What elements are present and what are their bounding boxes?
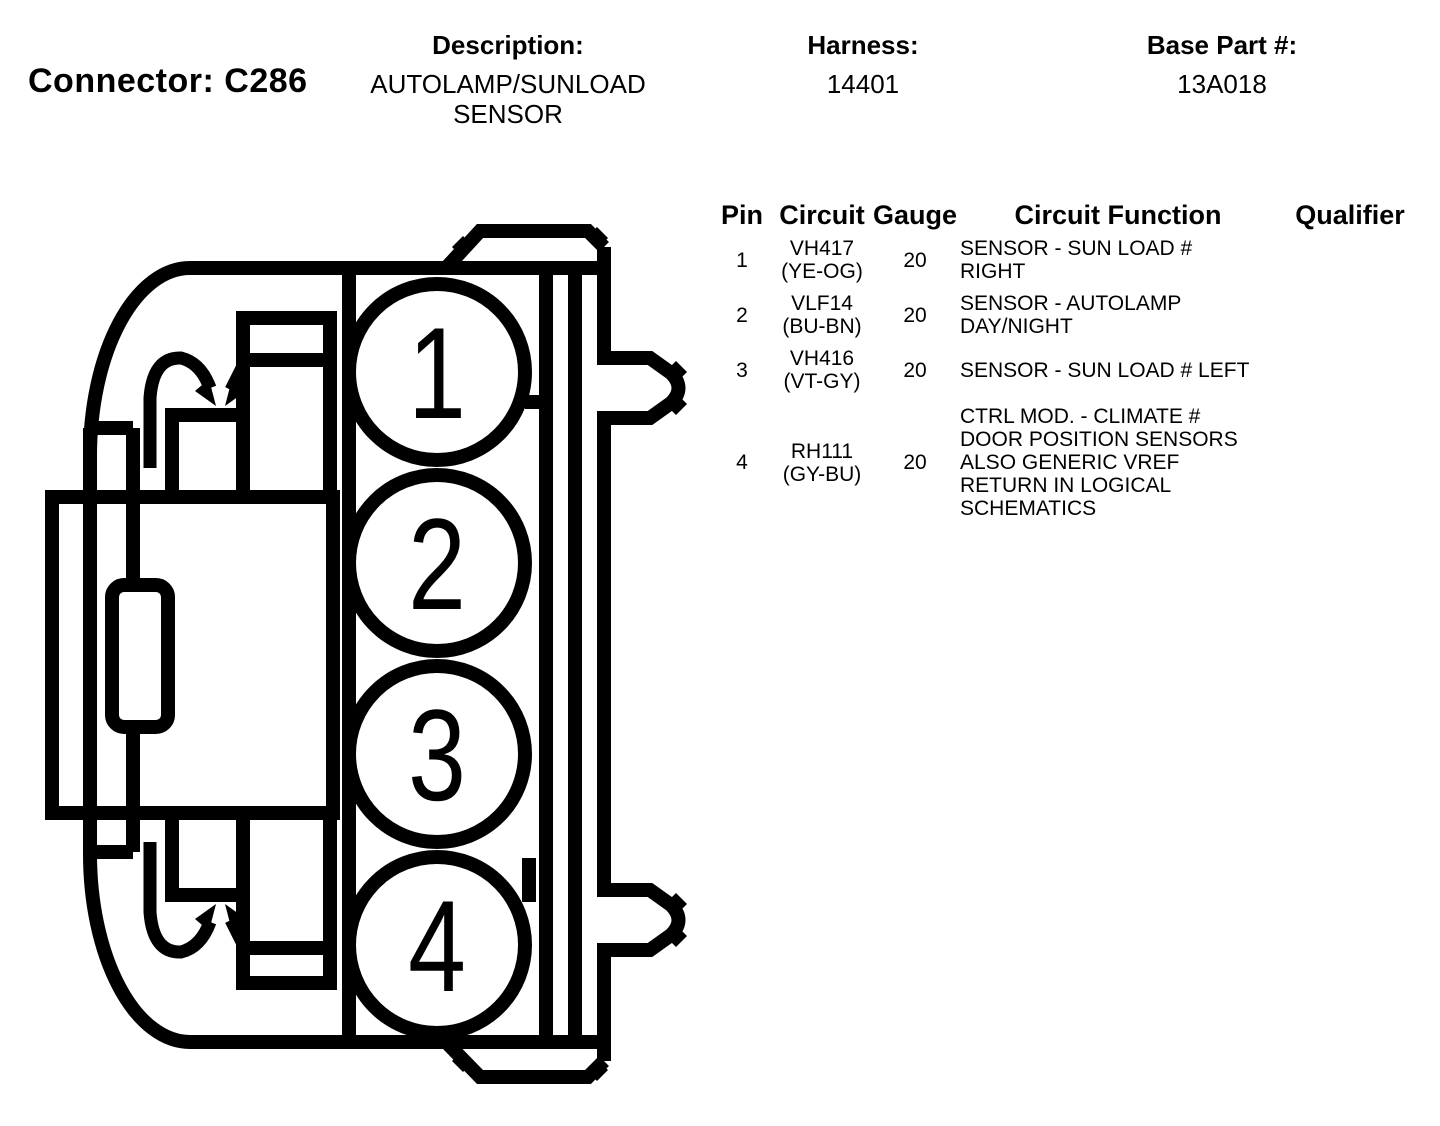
col-header-circuit-function: Circuit Function: [958, 199, 1278, 231]
pin-3-label: 3: [408, 682, 466, 828]
circuit-function-cell: SENSOR - SUN LOAD # LEFT: [958, 359, 1278, 382]
description-value-line2: SENSOR: [358, 99, 658, 129]
circuit-function-cell: SENSOR - AUTOLAMP DAY/NIGHT: [958, 292, 1278, 338]
circuit-function-cell: CTRL MOD. - CLIMATE # DOOR POSITION SENS…: [958, 405, 1278, 520]
circuit-cell: VH416 (VT-GY): [772, 347, 872, 393]
circuit-cell: VLF14 (BU-BN): [772, 292, 872, 338]
gauge-value: 20: [872, 451, 958, 474]
circuit-function-cell: SENSOR - SUN LOAD # RIGHT: [958, 237, 1278, 283]
base-part-label: Base Part #:: [1122, 30, 1322, 60]
harness-field: Harness: 14401: [763, 30, 963, 99]
pin-number: 1: [712, 249, 772, 272]
col-header-gauge: Gauge: [872, 199, 958, 231]
pin-2-label: 2: [408, 491, 466, 637]
table-row: 3 VH416 (VT-GY) 20 SENSOR - SUN LOAD # L…: [712, 347, 1422, 393]
table-row: 2 VLF14 (BU-BN) 20 SENSOR - AUTOLAMP DAY…: [712, 292, 1422, 338]
gauge-value: 20: [872, 249, 958, 272]
function-line: SENSOR - AUTOLAMP: [960, 292, 1278, 315]
pin-number: 3: [712, 359, 772, 382]
circuit-color: (GY-BU): [772, 463, 872, 486]
circuit-id: VH417: [772, 237, 872, 260]
function-line: CTRL MOD. - CLIMATE #: [960, 405, 1278, 428]
circuit-id: RH111: [772, 440, 872, 463]
pin-table: Pin Circuit Gauge Circuit Function Quali…: [712, 199, 1422, 520]
table-row: 1 VH417 (YE-OG) 20 SENSOR - SUN LOAD # R…: [712, 237, 1422, 283]
function-line: DOOR POSITION SENSORS: [960, 428, 1278, 451]
circuit-cell: RH111 (GY-BU): [772, 440, 872, 486]
col-header-circuit: Circuit: [772, 199, 872, 231]
gauge-value: 20: [872, 359, 958, 382]
circuit-color: (BU-BN): [772, 315, 872, 338]
function-line: SENSOR - SUN LOAD #: [960, 237, 1278, 260]
function-line: RETURN IN LOGICAL: [960, 474, 1278, 497]
circuit-color: (YE-OG): [772, 260, 872, 283]
pin-number: 4: [712, 451, 772, 474]
circuit-id: VLF14: [772, 292, 872, 315]
seal-block-bottom: [243, 813, 330, 983]
description-field: Description: AUTOLAMP/SUNLOAD SENSOR: [358, 30, 658, 129]
table-row: 4 RH111 (GY-BU) 20 CTRL MOD. - CLIMATE #…: [712, 405, 1422, 520]
harness-label: Harness:: [763, 30, 963, 60]
base-part-value: 13A018: [1122, 69, 1322, 99]
function-line: SCHEMATICS: [960, 497, 1278, 520]
pin-4-label: 4: [408, 873, 466, 1019]
seal-block-top: [243, 318, 330, 497]
gauge-value: 20: [872, 304, 958, 327]
col-header-pin: Pin: [712, 199, 772, 231]
function-line: RIGHT: [960, 260, 1278, 283]
circuit-color: (VT-GY): [772, 370, 872, 393]
pin-number: 2: [712, 304, 772, 327]
latch-block-bottom: [172, 813, 245, 895]
function-line: SENSOR - SUN LOAD # LEFT: [960, 359, 1278, 382]
pin-1-label: 1: [408, 300, 466, 446]
description-label: Description:: [358, 30, 658, 60]
col-header-qualifier: Qualifier: [1278, 199, 1422, 231]
circuit-cell: VH417 (YE-OG): [772, 237, 872, 283]
harness-value: 14401: [763, 69, 963, 99]
connector-outline: [52, 231, 679, 1077]
connector-diagram: 1 2 3 4: [40, 210, 700, 1115]
function-line: ALSO GENERIC VREF: [960, 451, 1278, 474]
base-part-field: Base Part #: 13A018: [1122, 30, 1322, 99]
function-line: DAY/NIGHT: [960, 315, 1278, 338]
description-value-line1: AUTOLAMP/SUNLOAD: [358, 69, 658, 99]
wire-body-slot: [112, 585, 168, 727]
pin-table-header: Pin Circuit Gauge Circuit Function Quali…: [712, 199, 1422, 231]
connector-title: Connector: C286: [28, 62, 308, 101]
latch-block-top: [172, 415, 245, 497]
right-edge-locking-lugs: [604, 247, 679, 1061]
circuit-id: VH416: [772, 347, 872, 370]
connector-pinout-page: Connector: C286 Description: AUTOLAMP/SU…: [0, 0, 1440, 1126]
